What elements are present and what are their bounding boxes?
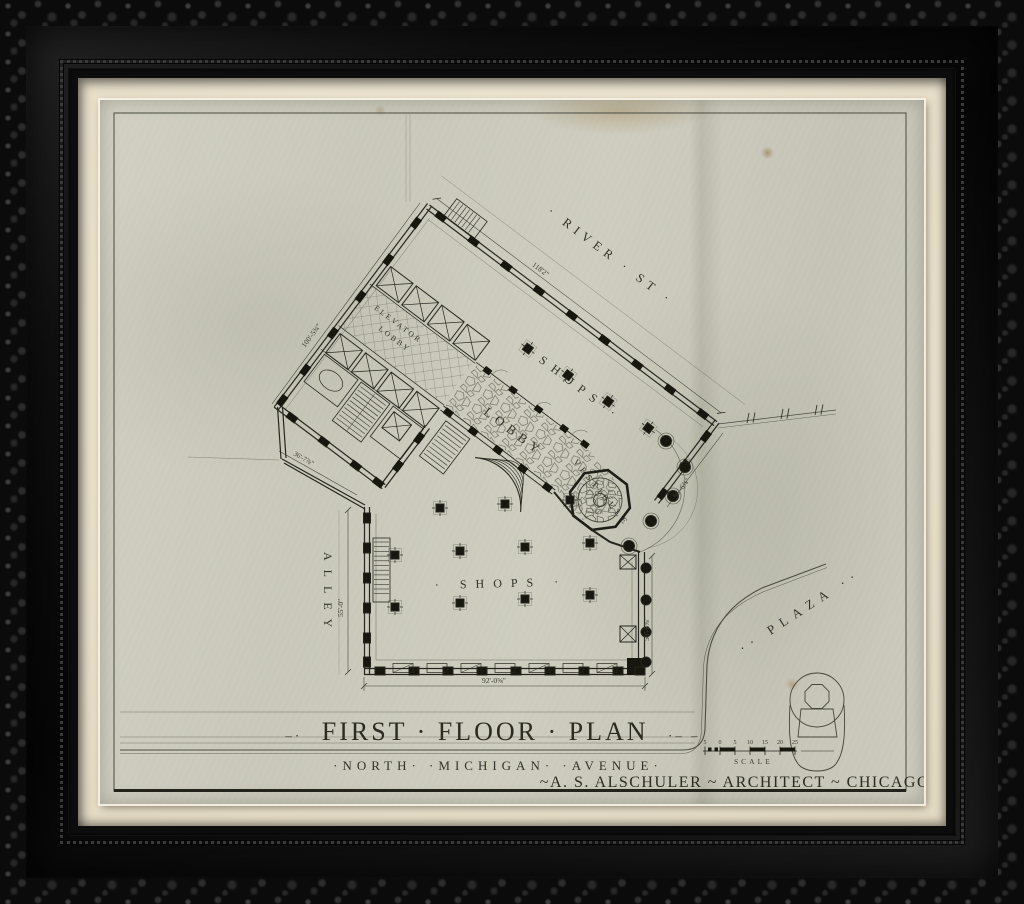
dimension-avenue-frontage: 92'-0⅝" <box>482 676 506 685</box>
title-ornament-right: ·– – <box>668 728 701 743</box>
scale-tick-label: 5 <box>734 740 737 746</box>
wall-column <box>364 513 371 523</box>
label-shops-lower: · SHOPS · <box>435 575 568 592</box>
wall-column <box>413 432 425 445</box>
drawing-paper: 118'2" · SHOPS · ELEVATOR LOBBY LOBBY <box>100 100 924 804</box>
wall-column <box>696 408 709 420</box>
interior-column <box>456 547 464 555</box>
entrance-column <box>624 541 635 552</box>
wall-column <box>364 633 371 643</box>
interior-column <box>643 422 654 433</box>
interior-column <box>566 496 574 504</box>
dimension-east-side: 50'-6⅝" <box>642 617 651 641</box>
dimension-alley-side: 55'-0" <box>336 599 345 617</box>
entrance-column <box>646 516 657 527</box>
wall-column <box>565 309 578 321</box>
survey-tick <box>787 409 789 419</box>
engaged-column <box>641 563 651 573</box>
scale-tick-label: 10 <box>747 740 753 746</box>
scale-tick-label: 5 <box>704 740 707 746</box>
wall-column <box>382 253 394 266</box>
monument-octagon <box>805 685 829 709</box>
wall-column <box>317 435 330 447</box>
dimension-river-frontage: 118'2" <box>530 260 551 279</box>
title-ornament-left: –· <box>284 728 302 743</box>
wall-column <box>364 573 371 583</box>
wall-column <box>410 216 422 229</box>
scale-label: SCALE <box>734 757 773 766</box>
wall-column <box>663 383 676 395</box>
engaged-column <box>641 657 651 667</box>
label-river-street: · RIVER · ST · <box>545 204 676 308</box>
scale-tick-label: 0 <box>719 740 722 746</box>
scale-tick-label: 15 <box>762 740 768 746</box>
survey-tick <box>821 405 823 415</box>
storefront-pier <box>477 667 487 675</box>
storefront-pier <box>511 667 521 675</box>
floor-plan-drawing: 118'2" · SHOPS · ELEVATOR LOBBY LOBBY <box>100 100 924 804</box>
storefront-pier <box>375 667 385 675</box>
storefront-pier <box>443 667 453 675</box>
label-plaza: ·· PLAZA ·· <box>736 566 863 656</box>
dimension-northwest-wall: 100'-5¾" <box>299 322 323 349</box>
wall-column <box>631 359 644 371</box>
wall-column <box>372 476 385 488</box>
storefront-pier <box>409 667 419 675</box>
wall-column <box>656 487 668 500</box>
wall-column <box>434 211 447 223</box>
wall-column <box>700 430 712 443</box>
label-alley: ALLEY <box>321 552 335 636</box>
avenue-block-details <box>620 555 636 642</box>
entrance-column <box>680 462 691 473</box>
stair-rail <box>347 394 375 431</box>
survey-tick <box>753 413 755 423</box>
scale-segment <box>750 748 765 752</box>
scale-segment <box>720 748 735 752</box>
architect-credit: ~A. S. ALSCHULER ~ ARCHITECT ~ CHICAGO~ <box>540 774 924 791</box>
wall-column <box>364 657 371 667</box>
scale-tick-label: 20 <box>777 740 783 746</box>
storefront-pier <box>579 667 589 675</box>
framed-floor-plan-artwork: 118'2" · SHOPS · ELEVATOR LOBBY LOBBY <box>0 0 1024 904</box>
interior-column <box>391 551 399 559</box>
wall-column <box>349 460 362 472</box>
stair-tread <box>458 210 469 225</box>
survey-tick <box>747 413 749 423</box>
river-street-wing: 118'2" · SHOPS · ELEVATOR LOBBY LOBBY <box>269 176 745 633</box>
drawing-title: –· FIRST · FLOOR · PLAN ·– – <box>284 717 700 746</box>
stair-tread <box>451 204 462 219</box>
storefront-pier <box>545 667 555 675</box>
interior-column <box>501 500 509 508</box>
wall-column <box>364 603 371 613</box>
wall-column <box>467 235 480 247</box>
interior-column <box>586 591 594 599</box>
wall-column <box>500 260 513 272</box>
plaza-monument <box>789 673 844 771</box>
wall-column <box>533 285 546 297</box>
stair-tread <box>469 217 480 232</box>
wall-column <box>285 411 298 423</box>
wall-column <box>392 460 404 473</box>
scale-subdivision <box>708 748 712 752</box>
scale-subdivision <box>715 748 719 752</box>
engaged-column <box>641 595 651 605</box>
scale-tick-label: 25 <box>792 740 798 746</box>
storefront-pier <box>613 667 623 675</box>
stair-tread <box>465 215 476 230</box>
interior-column <box>521 543 529 551</box>
interior-column <box>521 595 529 603</box>
wall-column <box>598 334 611 346</box>
interior-column <box>391 603 399 611</box>
interior-column <box>586 539 594 547</box>
title-text: FIRST · FLOOR · PLAN <box>322 717 649 746</box>
storefront-pier <box>635 667 645 675</box>
wall-column <box>364 543 371 553</box>
survey-tick <box>815 405 817 415</box>
stair-tread <box>455 207 466 222</box>
stair-tread <box>448 202 459 217</box>
scale-segment <box>780 748 795 752</box>
scale-bar: SCALE 50510152025 <box>703 740 798 766</box>
interior-column <box>456 599 464 607</box>
interior-column <box>436 504 444 512</box>
stair-tread <box>462 212 473 227</box>
entrance-column <box>661 436 672 447</box>
label-michigan-avenue: ·NORTH· ·MICHIGAN· ·AVENUE· <box>333 758 663 773</box>
survey-tick <box>781 409 783 419</box>
side-stair <box>419 421 469 474</box>
